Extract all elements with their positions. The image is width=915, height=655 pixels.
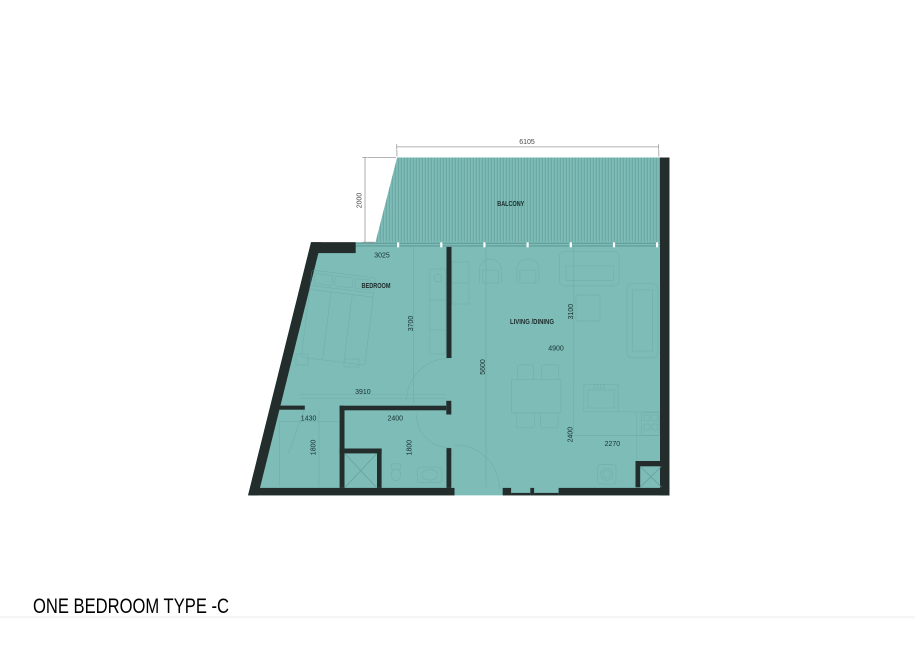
svg-text:4900: 4900: [548, 345, 564, 352]
svg-text:LIVING /DINING: LIVING /DINING: [510, 319, 554, 326]
svg-text:3025: 3025: [374, 252, 390, 259]
svg-text:5600: 5600: [480, 359, 487, 375]
svg-text:2400: 2400: [568, 427, 575, 443]
svg-text:ONE BEDROOM TYPE -C: ONE BEDROOM TYPE -C: [33, 594, 229, 618]
svg-text:1800: 1800: [406, 440, 413, 456]
svg-text:1430: 1430: [301, 416, 317, 423]
svg-text:2270: 2270: [605, 441, 621, 448]
svg-text:3910: 3910: [355, 389, 371, 396]
svg-text:2400: 2400: [388, 416, 404, 423]
svg-text:3700: 3700: [408, 316, 415, 332]
svg-text:3100: 3100: [568, 304, 575, 320]
svg-text:BEDROOM: BEDROOM: [362, 283, 391, 290]
svg-text:2000: 2000: [357, 193, 364, 209]
svg-text:6105: 6105: [519, 139, 535, 146]
svg-text:BALCONY: BALCONY: [497, 201, 524, 208]
svg-text:1800: 1800: [311, 440, 318, 456]
